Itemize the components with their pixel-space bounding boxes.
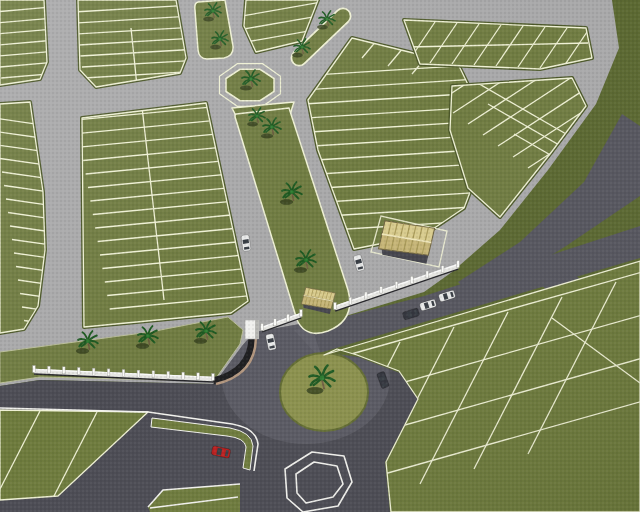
- lighting-overlay: [0, 0, 640, 512]
- site-plan-svg: [0, 0, 640, 512]
- aerial-site-plan-render: [0, 0, 640, 512]
